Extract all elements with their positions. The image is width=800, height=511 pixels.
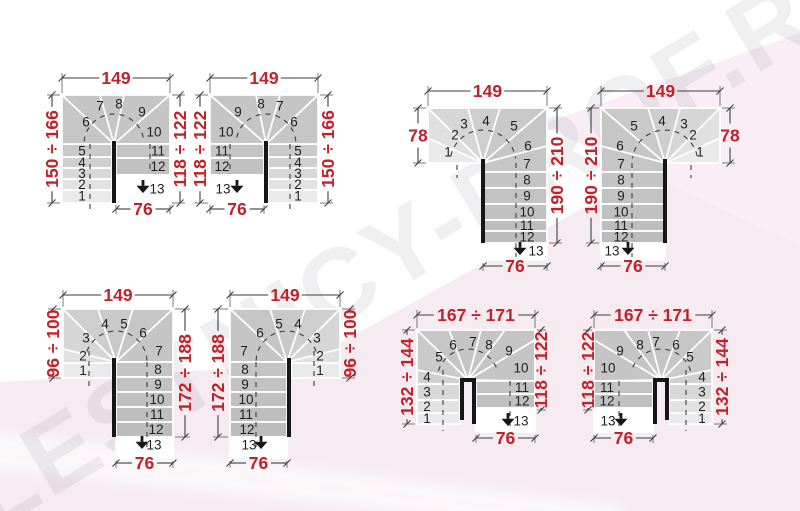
- dimension-label: 96 ÷ 100: [340, 309, 360, 377]
- dimension-label: 78: [408, 126, 428, 146]
- step-number: 2: [689, 128, 697, 143]
- step-number: 9: [138, 105, 146, 120]
- step-number: 8: [241, 362, 249, 377]
- step-number: 4: [658, 114, 666, 129]
- step-number: 13: [513, 414, 528, 429]
- step-number: 8: [154, 362, 162, 377]
- dimension-label: 149: [473, 81, 502, 101]
- dimension-label: 149: [646, 81, 675, 101]
- stair-diagram-8: 12345678910111213167 ÷ 17176132 ÷ 144118…: [544, 298, 762, 453]
- step-number: 4: [482, 114, 490, 129]
- step-number: 9: [616, 344, 624, 359]
- stair-diagram-2: 1234567891011121314976150 ÷ 166118 ÷ 122: [160, 63, 368, 226]
- step-number: 10: [600, 361, 615, 376]
- dimension-label: 118 ÷ 122: [190, 110, 210, 187]
- dimension-label: 149: [101, 68, 130, 88]
- step-number: 8: [636, 338, 644, 353]
- step-number: 12: [613, 230, 628, 245]
- step-number: 12: [214, 159, 229, 174]
- step-number: 7: [155, 344, 163, 359]
- step-number: 5: [435, 350, 443, 365]
- step-number: 3: [460, 117, 468, 132]
- step-number: 13: [604, 244, 619, 259]
- step-number: 9: [241, 377, 249, 392]
- dimension-label: 149: [270, 285, 299, 305]
- stair-diagram-6: 123456789101112131497696 ÷ 100172 ÷ 188: [180, 277, 390, 478]
- step-number: 7: [276, 99, 284, 114]
- dimension-label: 167 ÷ 171: [437, 305, 515, 325]
- dimension-label: 150 ÷ 166: [42, 110, 62, 188]
- step-number: 13: [215, 182, 230, 197]
- step-number: 1: [696, 145, 704, 160]
- step-number: 9: [154, 377, 162, 392]
- dimension-label: 96 ÷ 100: [43, 309, 63, 377]
- step-number: 7: [523, 157, 531, 172]
- dimension-label: 76: [227, 199, 247, 219]
- step-number: 13: [241, 438, 256, 453]
- dimension-label: 76: [133, 199, 153, 219]
- step-number: 10: [218, 125, 233, 140]
- dimension-label: 167 ÷ 171: [614, 305, 692, 325]
- step-number: 1: [79, 363, 87, 378]
- step-number: 5: [294, 144, 302, 159]
- step-number: 1: [444, 145, 452, 160]
- step-number: 7: [617, 157, 625, 172]
- step-number: 11: [150, 407, 164, 422]
- step-number: 5: [120, 317, 128, 332]
- step-number: 13: [146, 438, 161, 453]
- step-number: 5: [630, 119, 638, 134]
- dimension-label: 76: [249, 453, 269, 473]
- step-number: 5: [510, 119, 518, 134]
- step-number: 3: [82, 331, 90, 346]
- step-number: 6: [524, 139, 532, 154]
- step-number: 6: [672, 338, 680, 353]
- step-number: 9: [234, 105, 242, 120]
- step-number: 4: [423, 370, 431, 385]
- step-number: 12: [514, 394, 529, 409]
- stair-diagram-4: 123456789101112131497678190 ÷ 210: [551, 76, 770, 281]
- dimension-label: 132 ÷ 144: [397, 338, 417, 416]
- dimension-label: 149: [249, 68, 278, 88]
- dimension-label: 190 ÷ 210: [581, 136, 601, 214]
- step-number: 11: [239, 407, 253, 422]
- step-number: 7: [652, 335, 660, 350]
- stair-plans-figure: LESTNICY-PROF.RU 12345678910111213149761…: [0, 0, 800, 511]
- step-number: 8: [485, 338, 493, 353]
- step-number: 12: [239, 422, 254, 437]
- step-number: 8: [115, 97, 123, 112]
- step-number: 8: [617, 173, 625, 188]
- step-number: 9: [523, 189, 531, 204]
- dimension-label: 149: [103, 285, 132, 305]
- step-number: 7: [96, 99, 104, 114]
- step-number: 9: [617, 189, 625, 204]
- step-number: 2: [423, 399, 431, 414]
- step-number: 2: [79, 349, 87, 364]
- step-number: 13: [600, 414, 615, 429]
- step-number: 13: [528, 244, 543, 259]
- step-number: 8: [257, 97, 265, 112]
- step-number: 6: [82, 115, 90, 130]
- step-number: 3: [680, 117, 688, 132]
- step-number: 11: [215, 144, 229, 159]
- step-number: 6: [616, 139, 624, 154]
- step-number: 12: [519, 230, 534, 245]
- step-number: 3: [313, 331, 321, 346]
- step-number: 10: [149, 392, 164, 407]
- step-number: 4: [101, 317, 109, 332]
- dimension-label: 78: [720, 126, 740, 146]
- dimension-label: 76: [135, 453, 155, 473]
- step-number: 6: [449, 338, 457, 353]
- dimension-label: 118 ÷ 122: [578, 331, 598, 408]
- step-number: 3: [423, 385, 431, 400]
- step-number: 8: [523, 173, 531, 188]
- step-number: 7: [240, 344, 248, 359]
- step-number: 2: [451, 128, 459, 143]
- dimension-label: 76: [614, 428, 634, 448]
- step-number: 4: [698, 370, 706, 385]
- dimension-label: 172 ÷ 188: [208, 334, 228, 412]
- dimension-label: 76: [623, 256, 643, 276]
- step-number: 5: [275, 317, 283, 332]
- step-number: 6: [256, 326, 264, 341]
- step-number: 12: [599, 394, 614, 409]
- dimension-label: 150 ÷ 166: [318, 110, 338, 188]
- dimension-label: 76: [505, 256, 525, 276]
- step-number: 6: [139, 326, 147, 341]
- step-number: 2: [698, 399, 706, 414]
- step-number: 6: [290, 115, 298, 130]
- step-number: 5: [686, 350, 694, 365]
- step-number: 4: [294, 317, 302, 332]
- step-number: 10: [238, 392, 253, 407]
- step-number: 1: [316, 363, 324, 378]
- step-number: 9: [505, 344, 513, 359]
- step-number: 2: [316, 349, 324, 364]
- step-number: 10: [513, 361, 528, 376]
- step-number: 12: [148, 422, 163, 437]
- dimension-label: 132 ÷ 144: [712, 338, 732, 416]
- dimension-label: 76: [496, 428, 516, 448]
- step-number: 7: [469, 335, 477, 350]
- step-number: 3: [698, 385, 706, 400]
- step-number: 5: [78, 144, 86, 159]
